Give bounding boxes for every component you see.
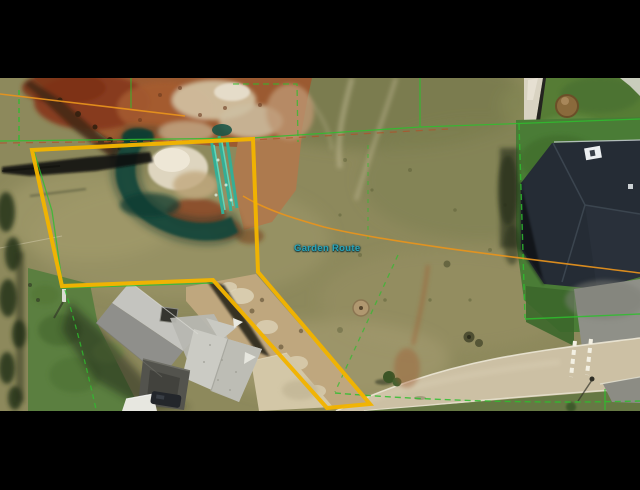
road-label: Garden Route [294, 243, 360, 254]
letterbox-top [0, 0, 640, 78]
map-viewport[interactable]: Garden Route [0, 0, 640, 490]
letterbox-bottom [0, 411, 640, 490]
